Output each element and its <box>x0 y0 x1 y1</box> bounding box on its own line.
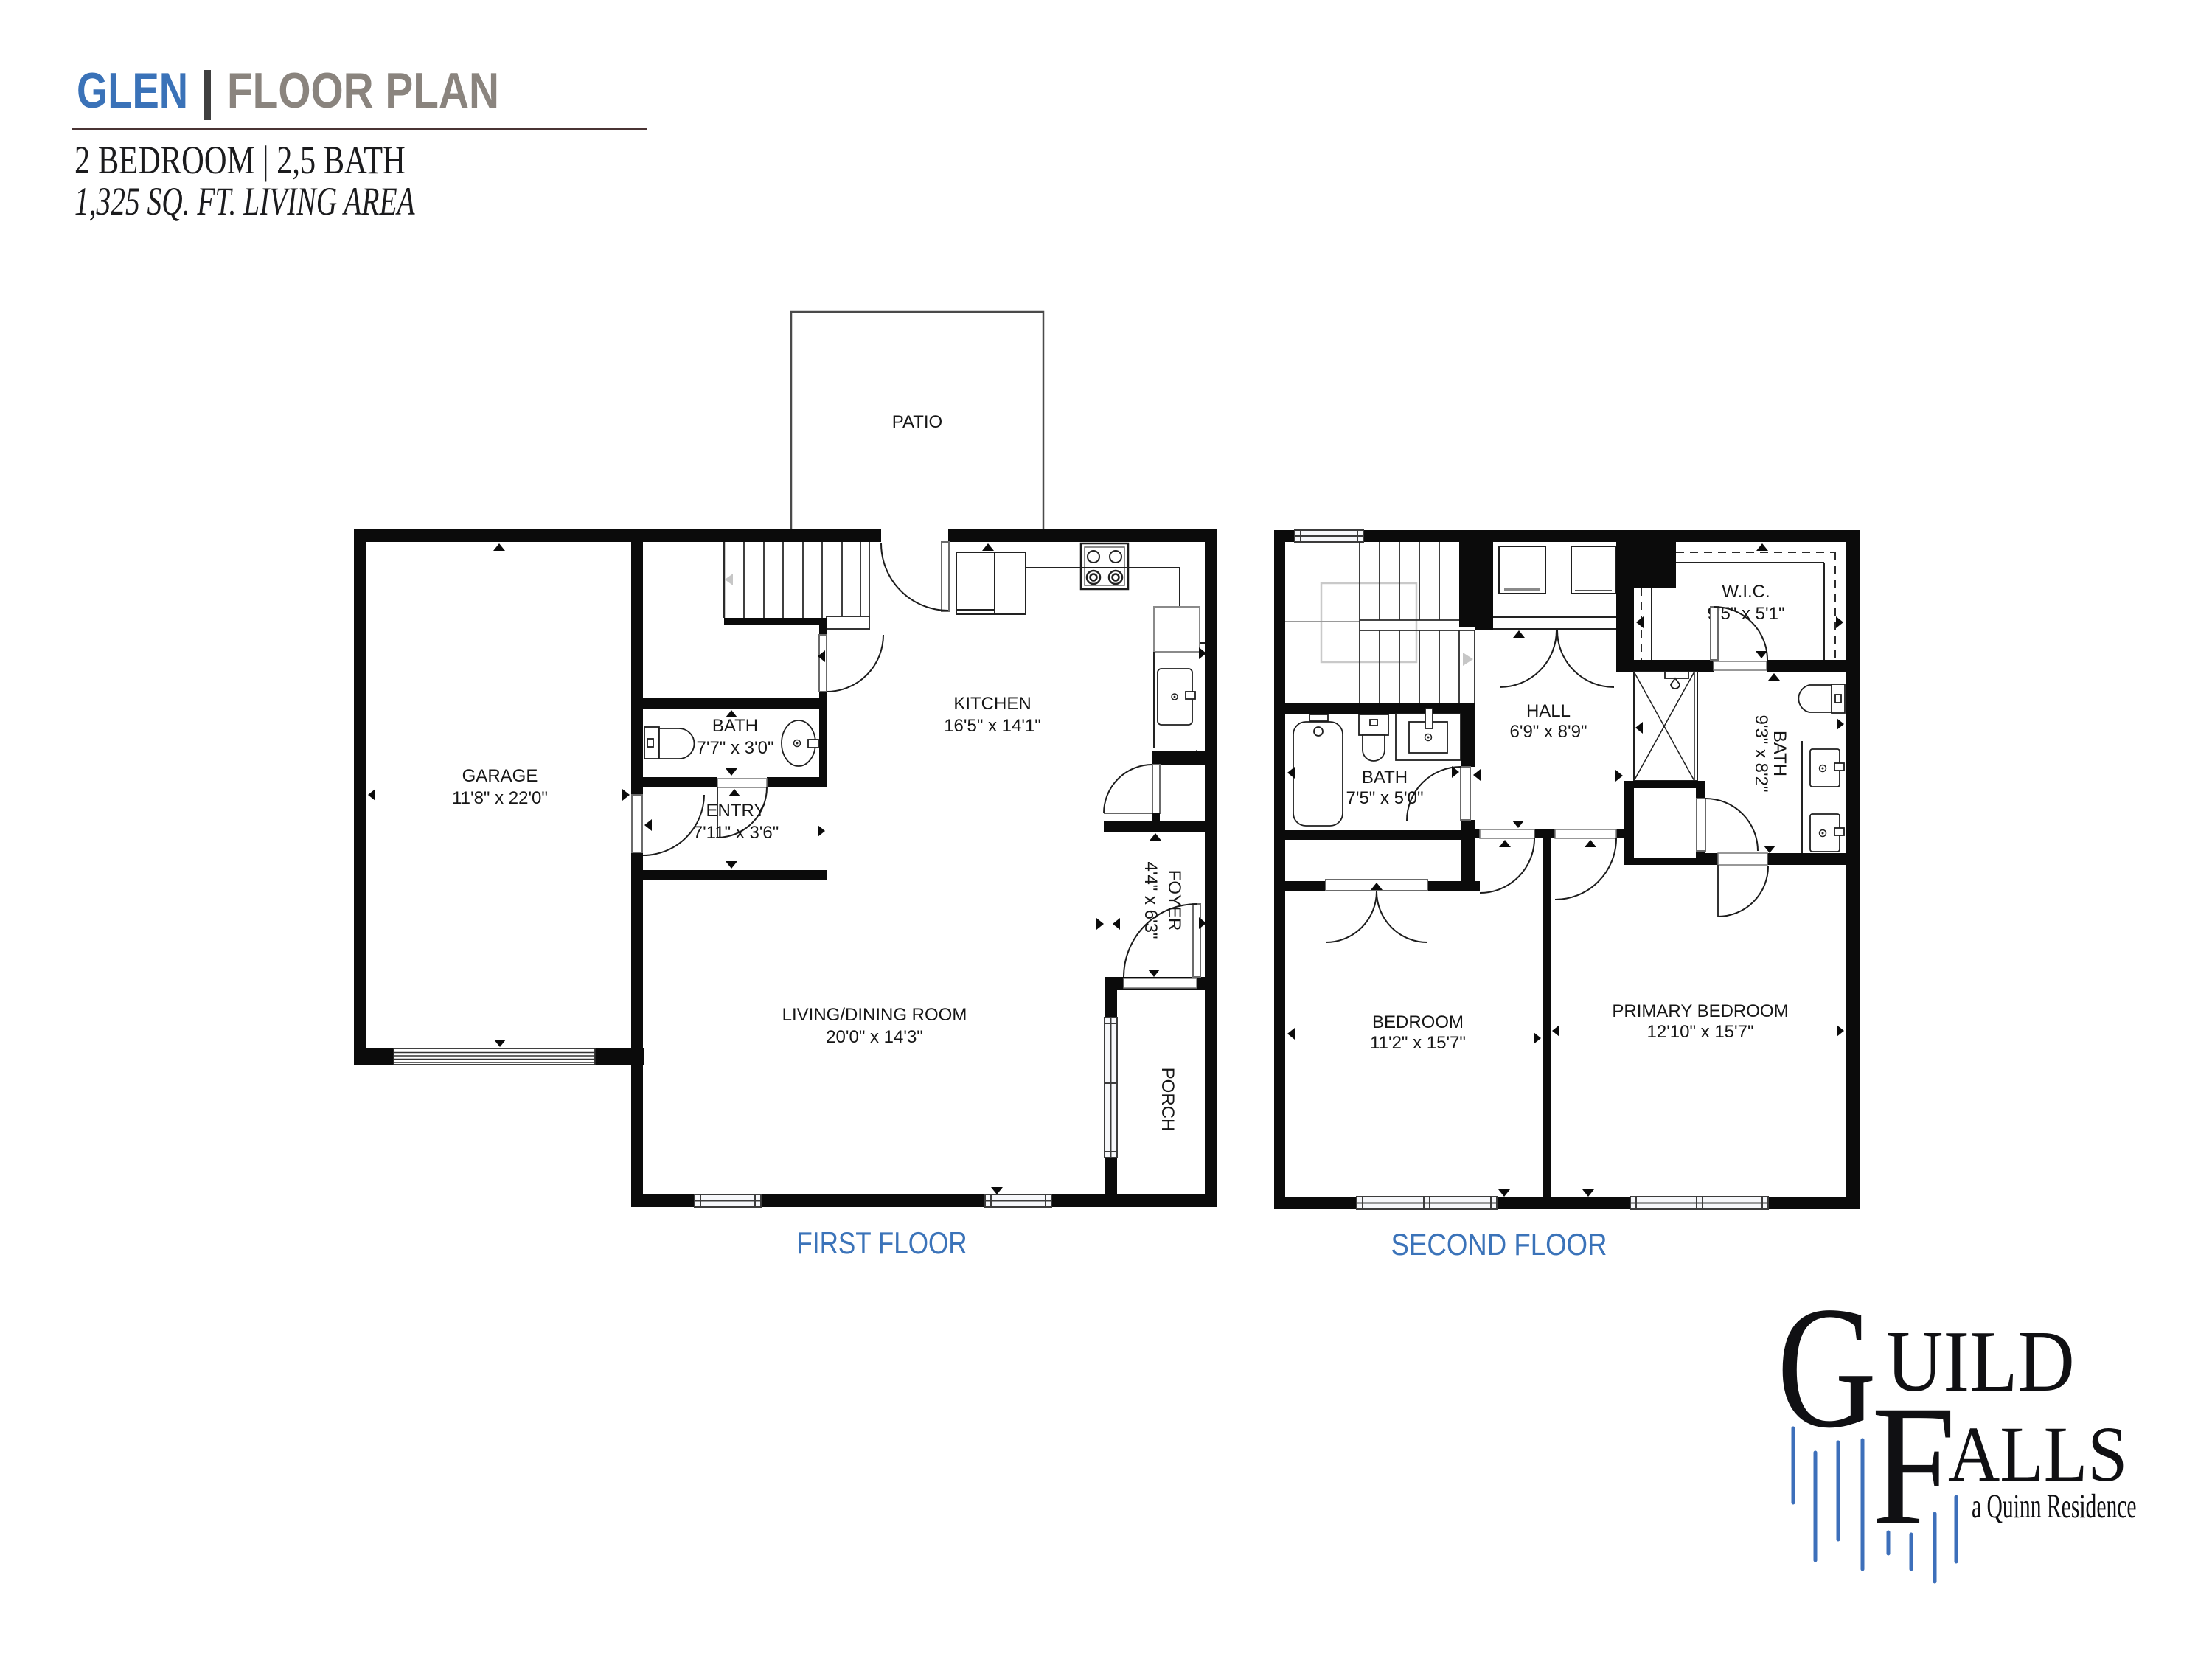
svg-text:6'9" x 8'9": 6'9" x 8'9" <box>1510 722 1587 742</box>
svg-text:GARAGE: GARAGE <box>462 766 538 786</box>
svg-text:PORCH: PORCH <box>1158 1068 1178 1132</box>
svg-text:PATIO: PATIO <box>892 412 942 432</box>
svg-text:GLEN: GLEN <box>77 63 188 119</box>
svg-text:a Quinn Residence: a Quinn Residence <box>1972 1487 2137 1525</box>
svg-text:W.I.C.: W.I.C. <box>1722 582 1770 602</box>
svg-text:BEDROOM: BEDROOM <box>1372 1012 1464 1032</box>
svg-text:ALLS: ALLS <box>1948 1411 2127 1498</box>
svg-text:HALL: HALL <box>1526 701 1571 721</box>
svg-text:BATH: BATH <box>1770 731 1790 776</box>
svg-text:4'4" x 6'3": 4'4" x 6'3" <box>1141 862 1161 939</box>
svg-text:2 BEDROOM | 2,5 BATH: 2 BEDROOM | 2,5 BATH <box>74 138 406 182</box>
svg-text:20'0" x 14'3": 20'0" x 14'3" <box>826 1027 923 1047</box>
svg-text:9'3" x 8'2": 9'3" x 8'2" <box>1751 715 1771 793</box>
svg-text:12'10" x 15'7": 12'10" x 15'7" <box>1647 1022 1754 1042</box>
svg-text:11'8" x 22'0": 11'8" x 22'0" <box>452 788 548 808</box>
svg-text:SECOND FLOOR: SECOND FLOOR <box>1391 1228 1607 1262</box>
svg-text:KITCHEN: KITCHEN <box>953 694 1031 714</box>
svg-text:PRIMARY BEDROOM: PRIMARY BEDROOM <box>1612 1001 1788 1021</box>
svg-text:FIRST FLOOR: FIRST FLOOR <box>796 1226 967 1261</box>
svg-text:ENTRY: ENTRY <box>706 801 766 821</box>
svg-text:1,325 SQ. FT. LIVING AREA: 1,325 SQ. FT. LIVING AREA <box>74 180 416 223</box>
svg-text:7'11" x 3'6": 7'11" x 3'6" <box>693 823 779 843</box>
svg-text:16'5" x 14'1": 16'5" x 14'1" <box>944 716 1041 736</box>
svg-text:BATH: BATH <box>712 716 758 736</box>
svg-text:F: F <box>1871 1370 1956 1561</box>
svg-text:LIVING/DINING ROOM: LIVING/DINING ROOM <box>782 1005 967 1025</box>
svg-text:FOYER: FOYER <box>1164 870 1184 931</box>
svg-text:7'7" x 3'0": 7'7" x 3'0" <box>697 738 774 758</box>
svg-text:BATH: BATH <box>1362 768 1408 787</box>
svg-text:11'2" x 15'7": 11'2" x 15'7" <box>1370 1033 1466 1053</box>
svg-text:FLOOR PLAN: FLOOR PLAN <box>227 63 499 119</box>
